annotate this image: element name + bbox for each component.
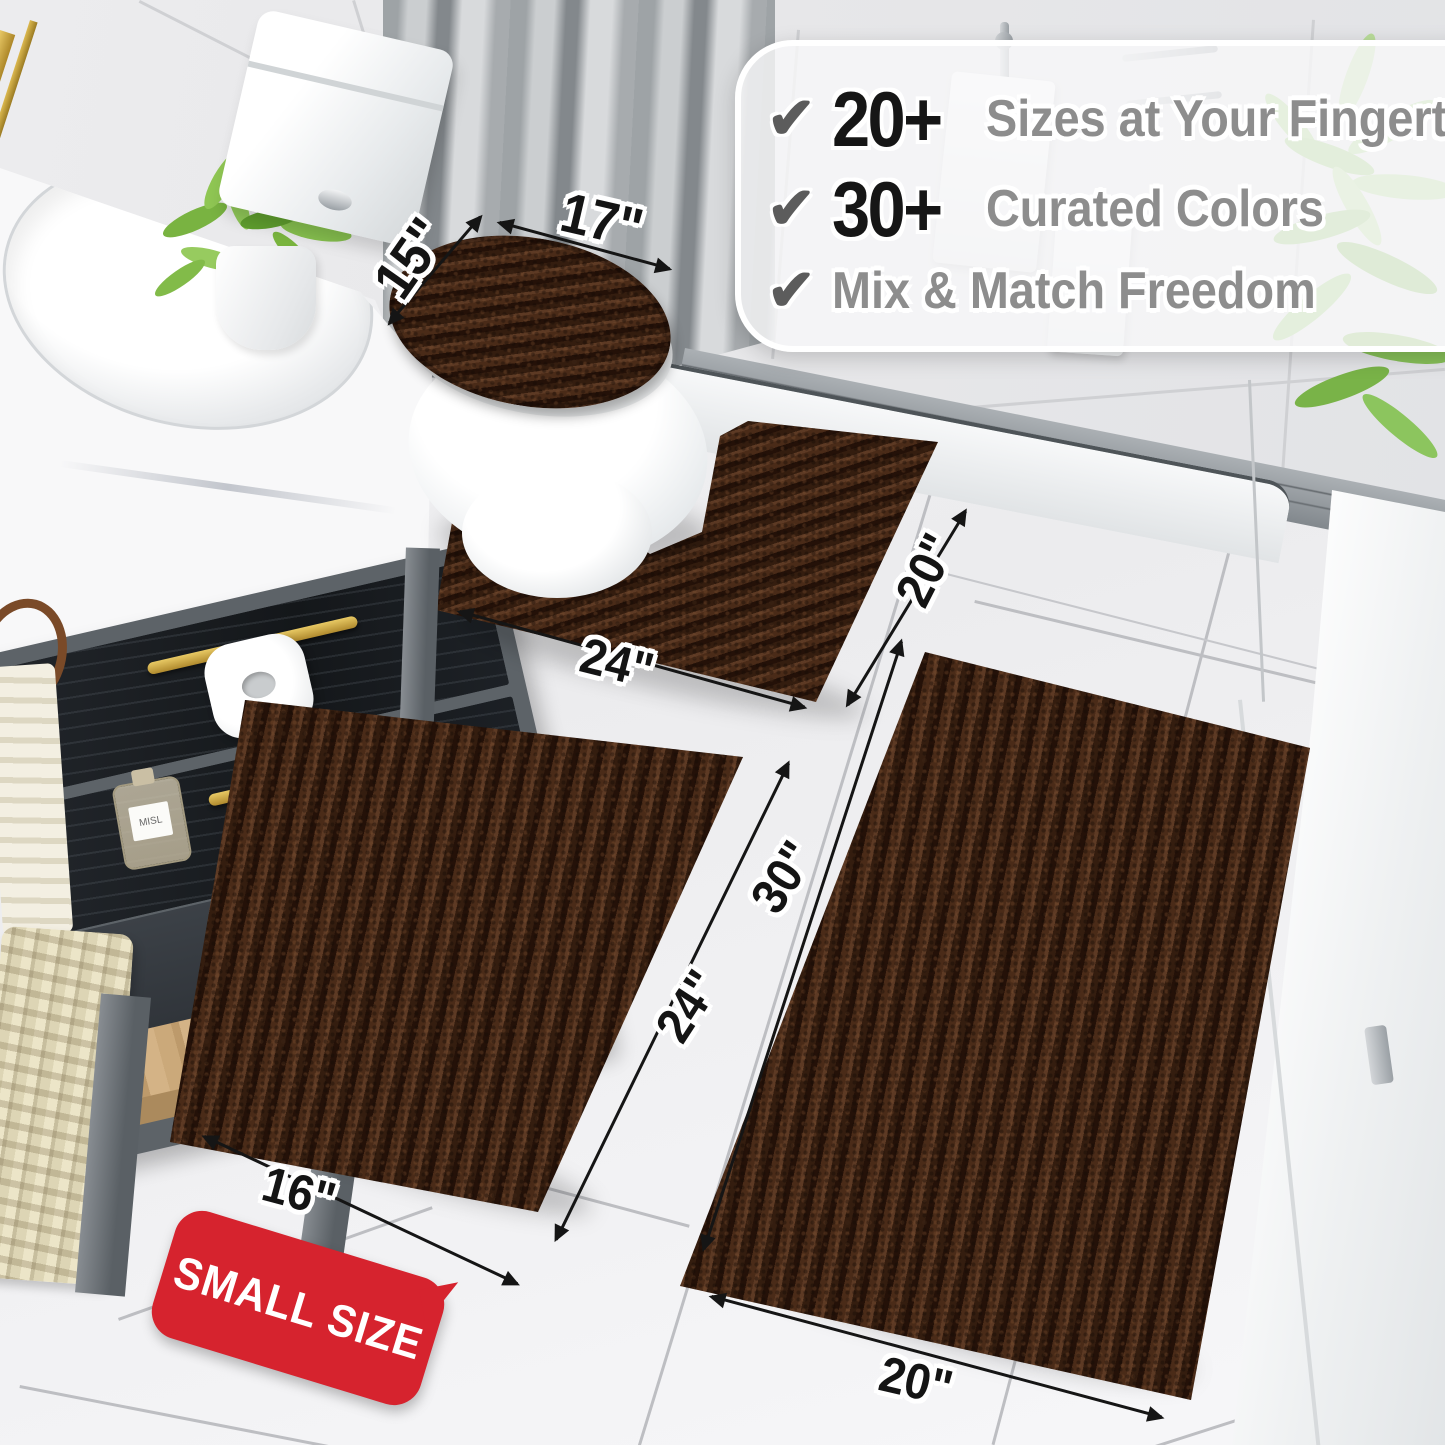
dim-label-large-width: 20" [874,1345,958,1418]
bottle-label: MISL [128,801,173,841]
marble-vein [59,460,397,514]
small-size-badge-text: SMALL SIZE [167,1246,428,1371]
toilet-paper-core [239,669,278,702]
feature-row: ✔ 20+ Sizes at Your Fingertips [767,80,1445,158]
leaf [159,196,231,244]
bathroom-product-photo: MISL 15" 17" 24" 20" 30" 24" 16" 20" [0,0,1445,1445]
toilet-pedestal [462,468,652,598]
dim-label-small-length: 24" [644,960,732,1053]
leaf [151,254,209,302]
feature-number: 30+ [832,170,953,248]
feature-label: Mix & Match Freedom [832,265,1316,317]
check-icon: ✔ [767,180,816,238]
floor-grout-line [19,1385,330,1445]
feature-number: 20+ [832,80,953,158]
perfume-bottle: MISL [111,775,193,872]
small-bath-rug [168,695,748,1217]
small-size-badge: SMALL SIZE [145,1204,451,1412]
leaf [1356,387,1444,466]
feature-label: Sizes at Your Fingertips [986,93,1445,145]
check-icon: ✔ [767,262,816,320]
tank-lid-seam [248,61,444,112]
bottle-label-text: MISL [138,814,163,829]
large-bath-rug [655,645,1315,1405]
feature-callout-box: ✔ 20+ Sizes at Your Fingertips ✔ 30+ Cur… [735,40,1445,352]
check-icon: ✔ [767,90,816,148]
feature-row: ✔ Mix & Match Freedom [767,262,1369,320]
feature-row: ✔ 30+ Curated Colors [767,170,1361,248]
feature-label: Curated Colors [986,183,1324,235]
plant-pot [216,246,316,350]
bottle-cap [131,767,155,787]
